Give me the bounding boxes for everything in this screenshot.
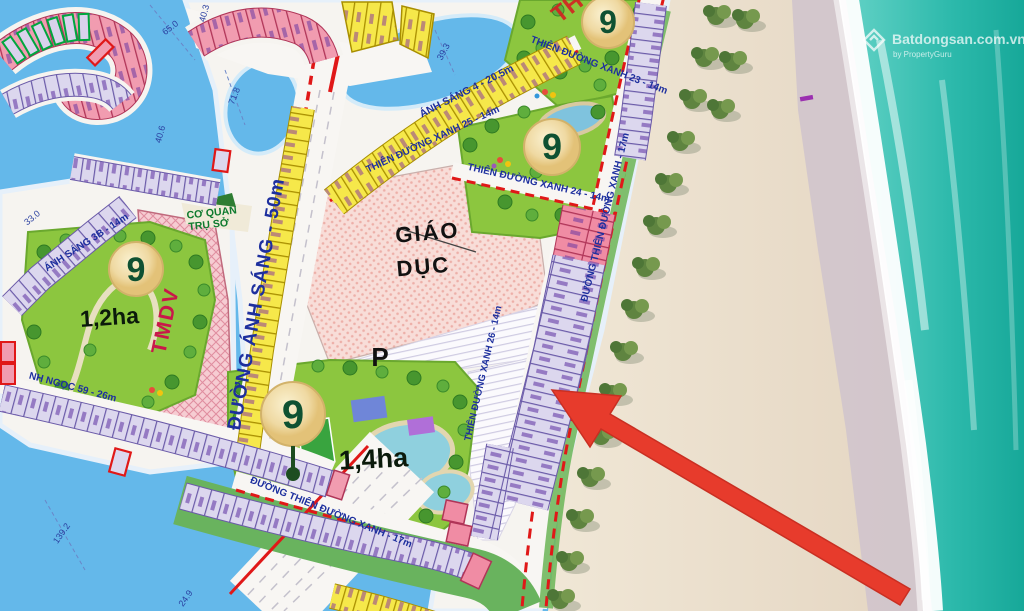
- beachfront-pink-plots: [579, 210, 589, 262]
- park-1-4ha-label: 1,4ha: [338, 442, 410, 476]
- badge-number: 9: [542, 126, 562, 167]
- watermark-sub: by PropertyGuru: [893, 50, 952, 59]
- watermark-brand: Batdongsan.com.vn: [892, 31, 1024, 47]
- plot-column-south: [484, 446, 500, 538]
- badge-number: 9: [282, 393, 304, 437]
- water-park: [351, 396, 388, 423]
- badge-pin-head: [286, 467, 300, 481]
- pink-corner-plot: [446, 522, 472, 546]
- map-canvas: 9 9 9 9 ĐƯỜNG ÁNH SÁNG - 50m ÁNH SÁNG 4 …: [0, 0, 1024, 611]
- masterplan-map: 9 9 9 9 ĐƯỜNG ÁNH SÁNG - 50m ÁNH SÁNG 4 …: [0, 0, 1024, 611]
- red-outlined-plot: [1, 342, 15, 362]
- education-label-2: DỤC: [396, 252, 452, 282]
- badge-number: 9: [599, 4, 617, 40]
- parking-label: P: [371, 342, 388, 372]
- badge-number: 9: [127, 251, 146, 289]
- pink-corner-plot: [442, 500, 468, 524]
- red-outlined-plot: [213, 149, 231, 172]
- park-1-2ha-label: 1,2ha: [79, 302, 140, 332]
- red-outlined-plot: [1, 364, 15, 384]
